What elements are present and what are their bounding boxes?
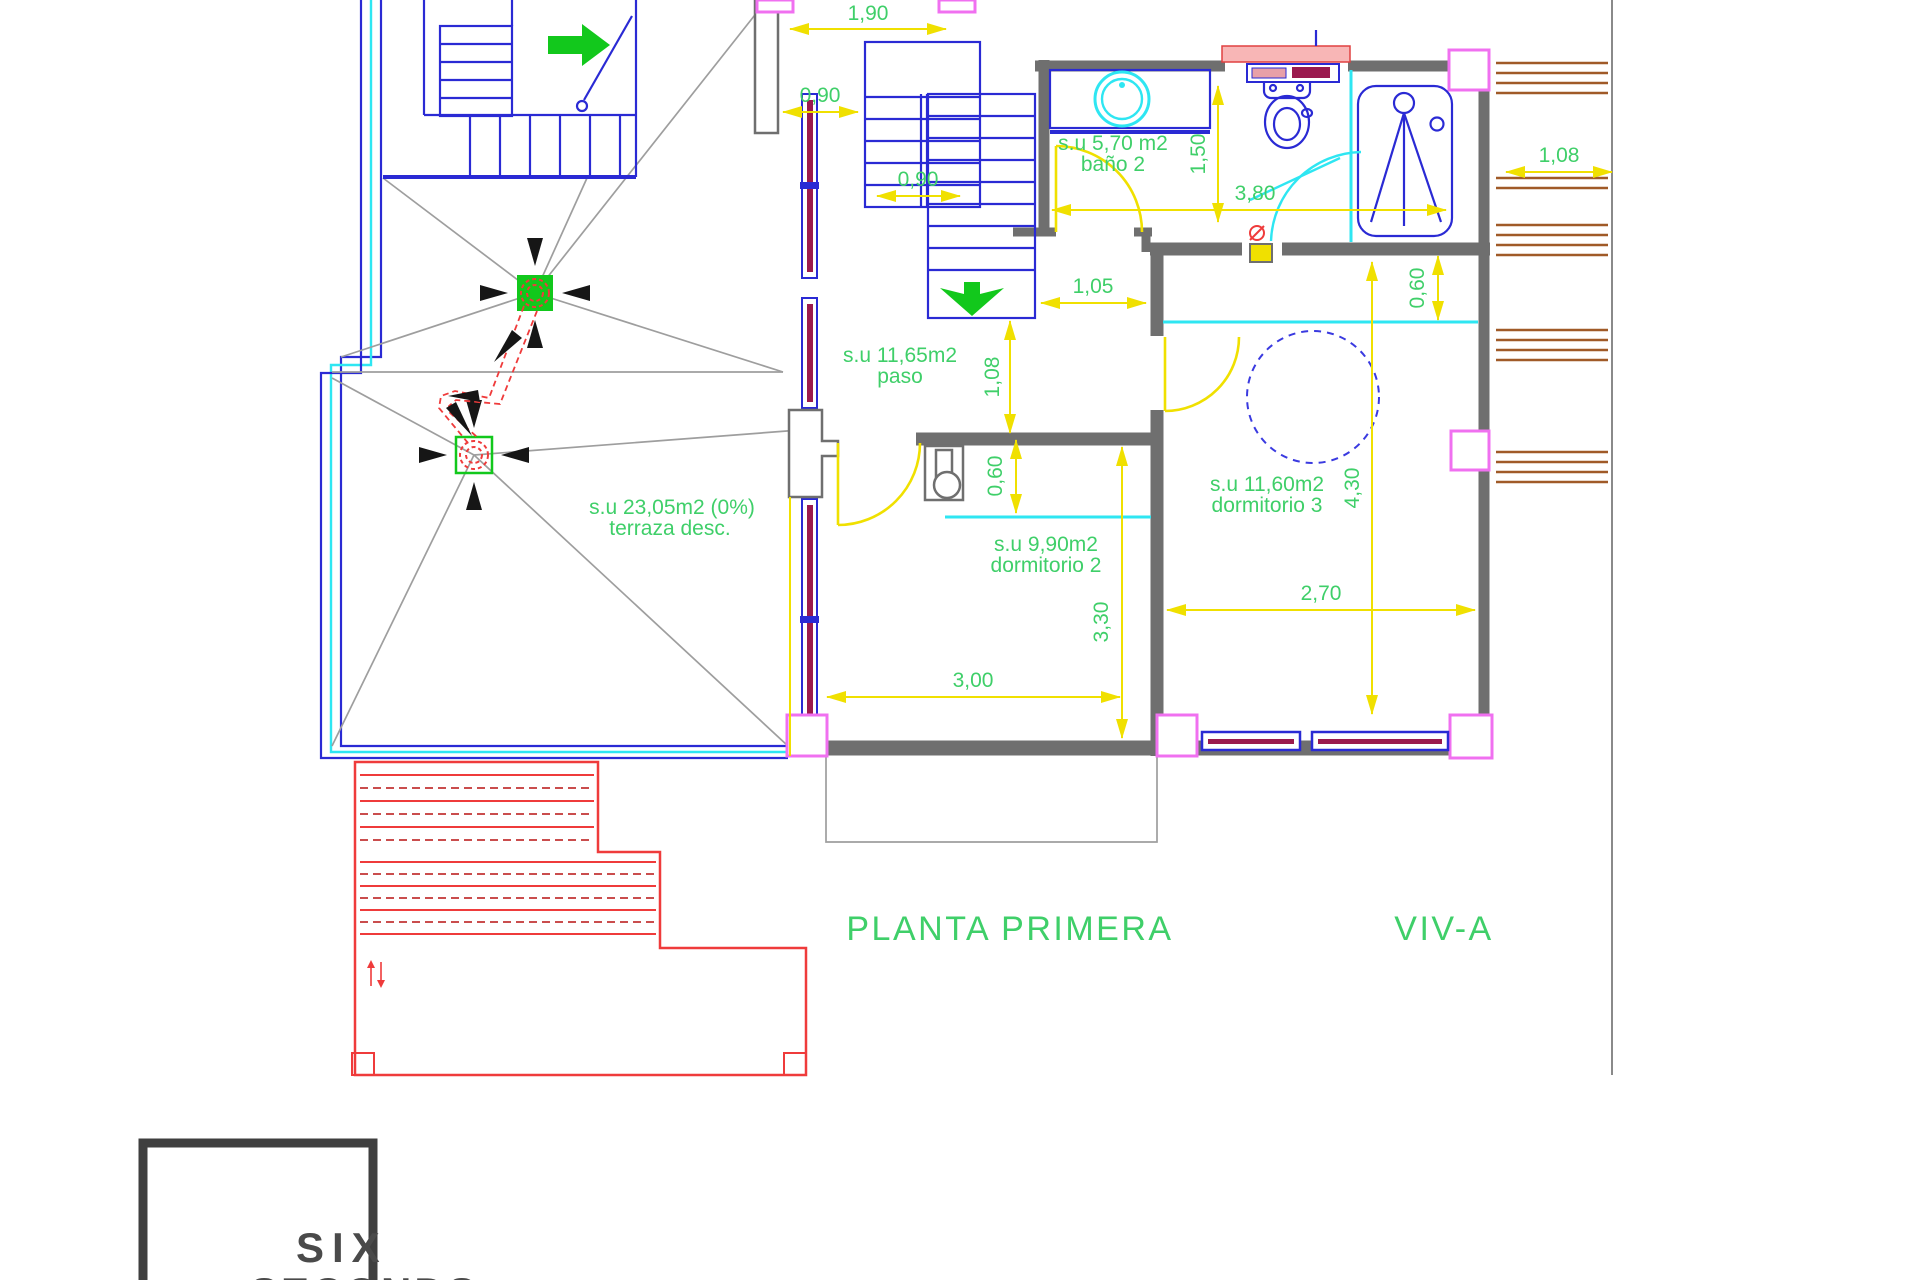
room-dorm2-area: s.u 9,90m2 — [994, 533, 1098, 556]
dim-dorm2-shaft: 0,60 — [984, 456, 1007, 497]
wall-stub-paso — [755, 0, 778, 133]
floor-plan-page: 1,90 0,90 0,90 1,50 3,80 1,08 1,05 1,08 … — [0, 0, 1920, 1280]
room-dorm3-area: s.u 11,60m2 — [1210, 473, 1324, 496]
dim-stair-landing: 0,90 — [898, 168, 939, 191]
room-terraza-name: terraza desc. — [609, 517, 730, 540]
dim-paso-opening: 1,05 — [1073, 275, 1114, 298]
room-paso-name: paso — [877, 365, 923, 388]
room-dorm3-name: dormitorio 3 — [1212, 494, 1323, 517]
paper-background — [0, 0, 1920, 1280]
dim-bano2-depth: 1,50 — [1187, 134, 1210, 175]
room-dorm2-name: dormitorio 2 — [991, 554, 1102, 577]
dim-bano2-width: 3,80 — [1235, 182, 1276, 205]
room-bano2-name: baño 2 — [1081, 153, 1145, 176]
dim-stair-flight: 0,90 — [800, 84, 841, 107]
dim-dorm2-width: 3,00 — [953, 669, 994, 692]
dim-exterior-right: 1,08 — [1539, 144, 1580, 167]
plan-title: PLANTA PRIMERA — [846, 910, 1173, 948]
dim-stair-width: 1,90 — [848, 2, 889, 25]
shaft-box — [1250, 244, 1272, 262]
dim-dorm3-depth: 4,30 — [1341, 468, 1364, 509]
architectural-floor-plan: 1,90 0,90 0,90 1,50 3,80 1,08 1,05 1,08 … — [0, 0, 1920, 1280]
duct-shaft — [925, 446, 963, 500]
dim-dorm2-depth: 3,30 — [1090, 602, 1113, 643]
dim-dorm3-closet: 0,60 — [1406, 268, 1429, 309]
drawing-titles: PLANTA PRIMERA VIV-A — [846, 910, 1493, 948]
unit-label: VIV-A — [1394, 910, 1493, 948]
room-terraza-area: s.u 23,05m2 (0%) — [589, 496, 755, 519]
dim-dorm3-width: 2,70 — [1301, 582, 1342, 605]
logo-line2: SECONDS — [250, 1269, 479, 1280]
logo-line1: SIX — [296, 1224, 388, 1271]
dim-paso-depth: 1,08 — [981, 357, 1004, 398]
room-paso-area: s.u 11,65m2 — [843, 344, 957, 367]
south-windows — [1202, 732, 1448, 750]
room-bano2-area: s.u 5,70 m2 — [1058, 132, 1168, 155]
